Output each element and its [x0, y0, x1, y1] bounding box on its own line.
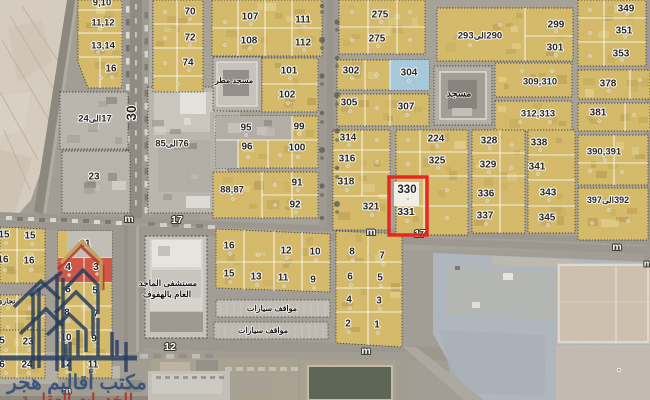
svg-text:12: 12: [164, 341, 176, 353]
svg-text:m: m: [361, 345, 370, 357]
svg-text:m: m: [612, 241, 621, 253]
svg-text:m: m: [124, 213, 133, 225]
svg-text:مكتب أقاليم هجر: مكتب أقاليم هجر: [5, 368, 147, 395]
svg-text:17: 17: [171, 214, 183, 226]
svg-text:m: m: [366, 226, 375, 238]
svg-text:للخدمات العقارية: للخدمات العقارية: [21, 392, 134, 400]
svg-text:30: 30: [124, 105, 139, 120]
svg-text:m: m: [644, 258, 650, 269]
